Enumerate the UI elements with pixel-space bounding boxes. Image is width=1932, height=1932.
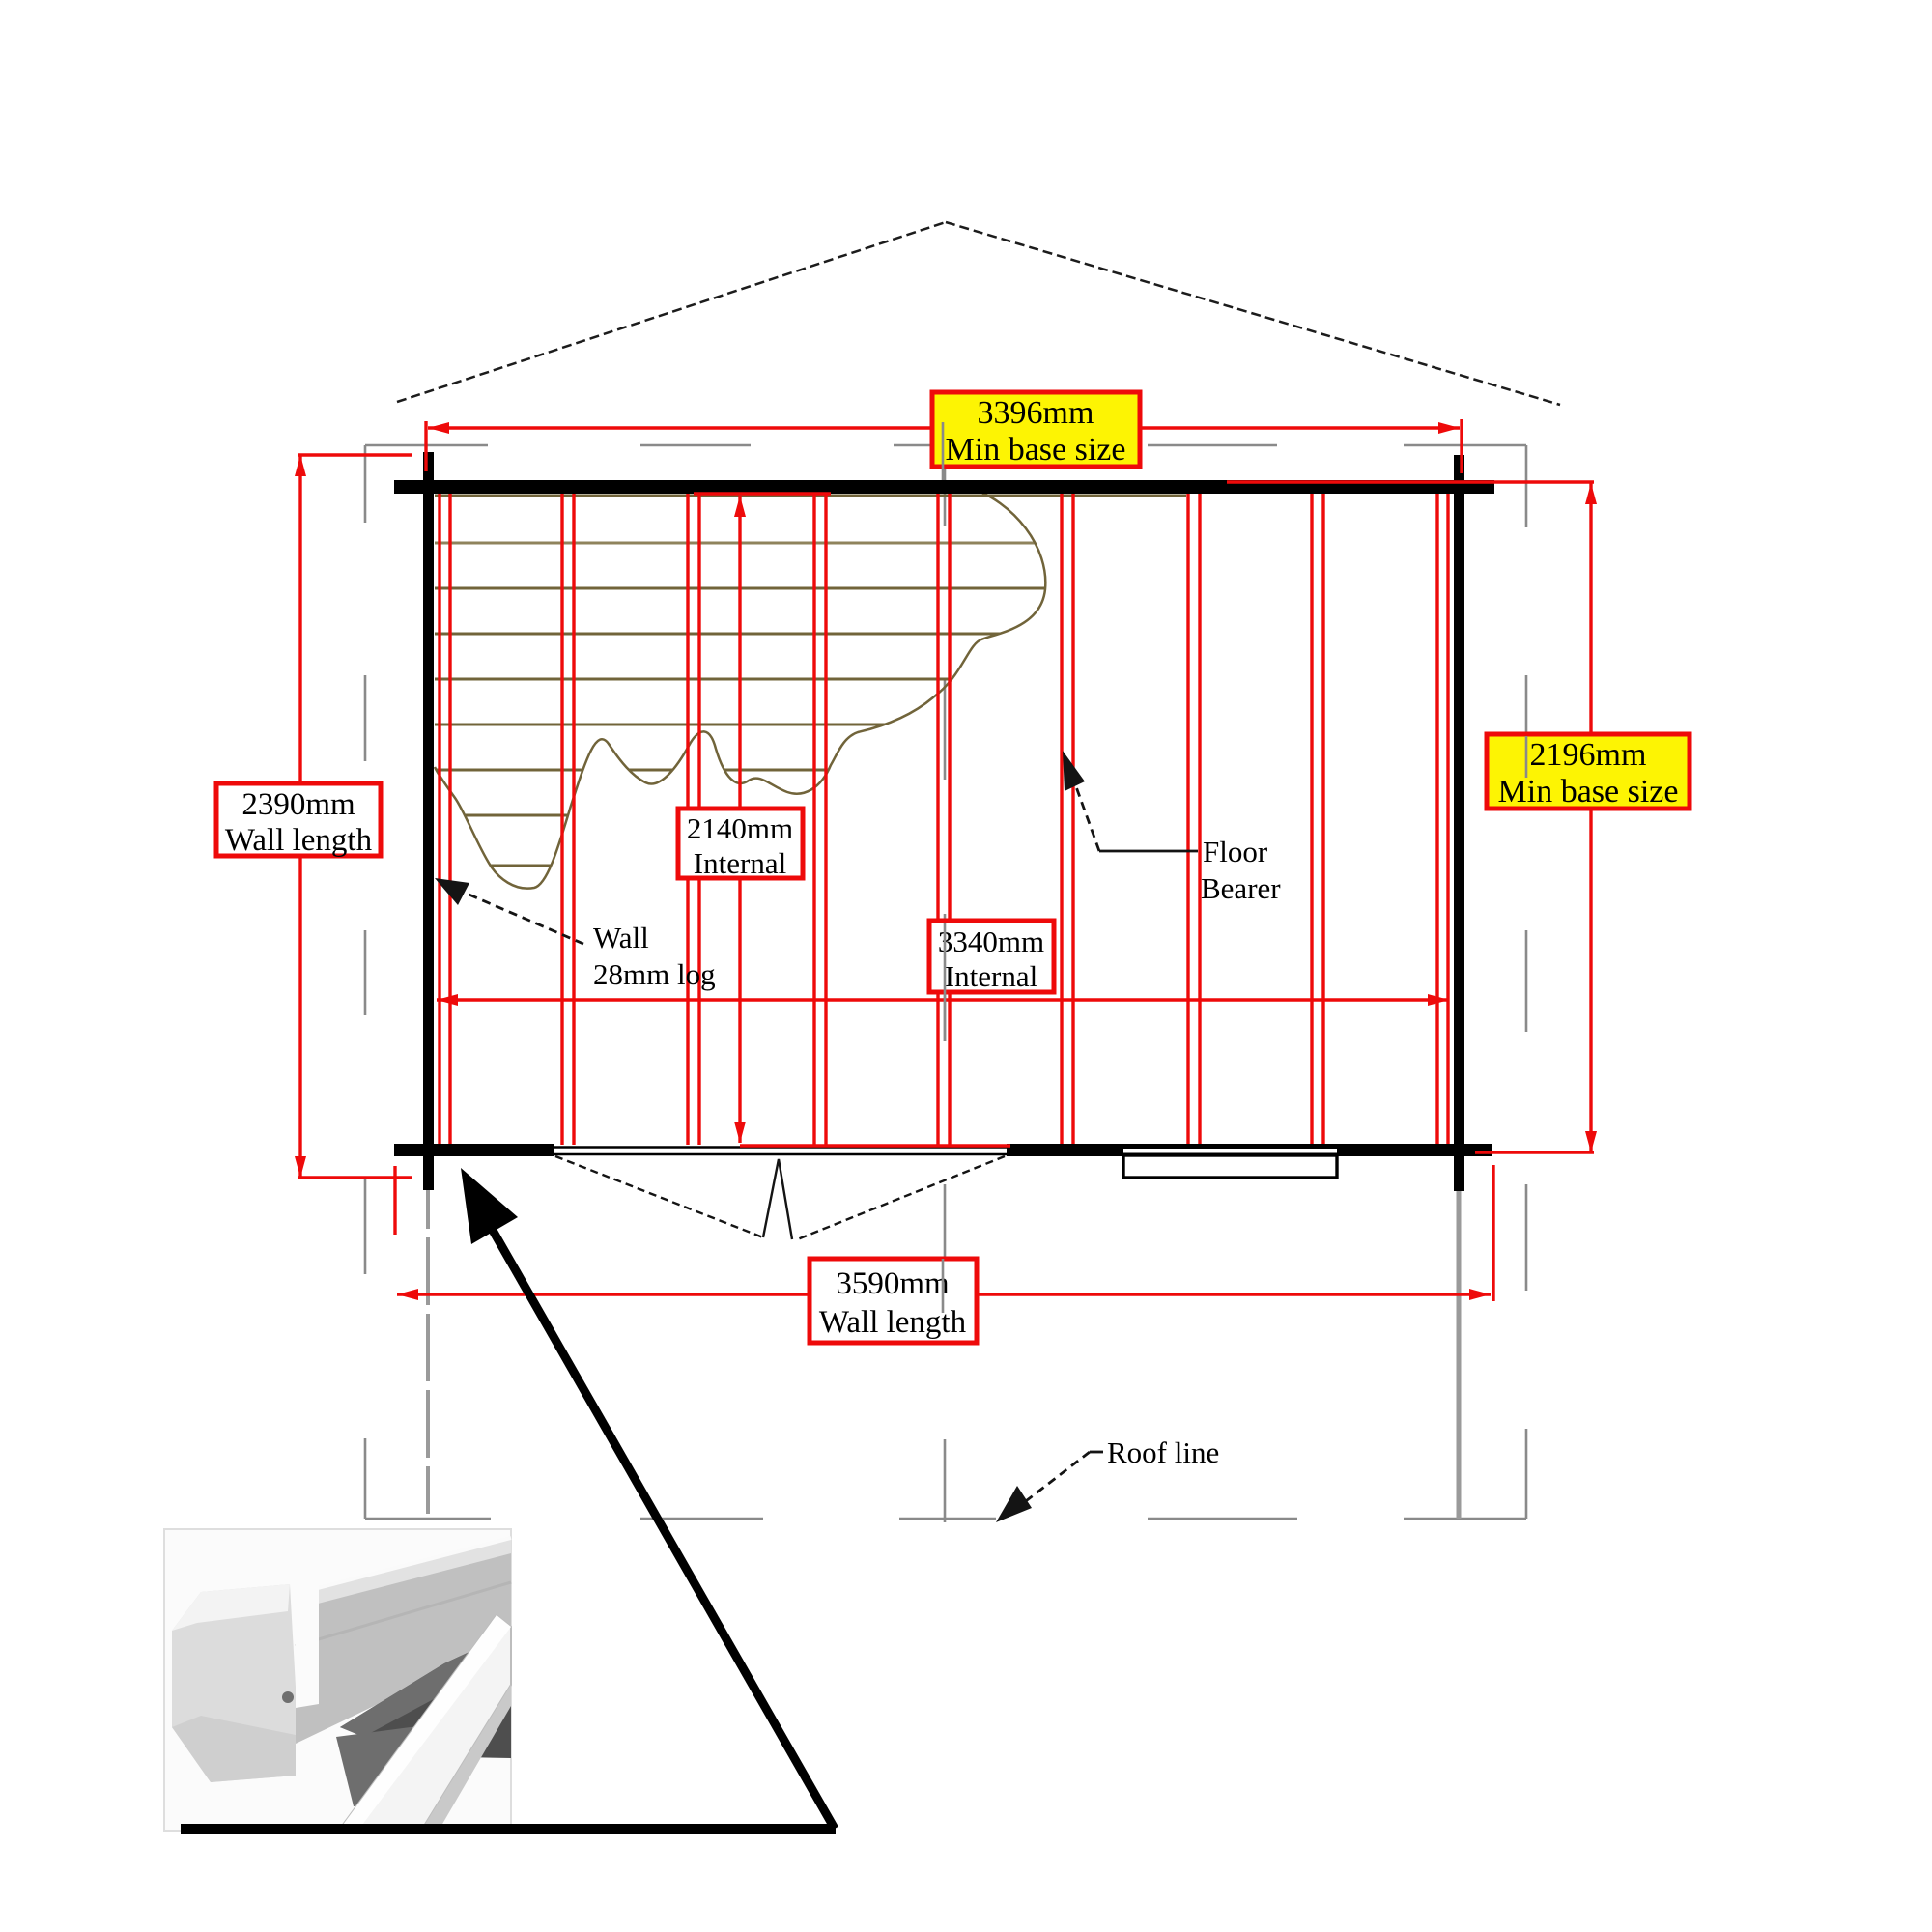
- svg-text:2390mm: 2390mm: [241, 787, 355, 822]
- svg-text:3396mm: 3396mm: [978, 395, 1094, 431]
- svg-text:Wall length: Wall length: [819, 1305, 967, 1340]
- svg-text:28mm log: 28mm log: [593, 957, 716, 991]
- svg-text:Min base size: Min base size: [946, 432, 1126, 468]
- svg-text:3340mm: 3340mm: [938, 924, 1044, 958]
- svg-text:Bearer: Bearer: [1201, 871, 1281, 905]
- svg-text:Internal: Internal: [694, 846, 786, 880]
- svg-text:Min base size: Min base size: [1498, 774, 1679, 810]
- svg-text:Floor: Floor: [1203, 835, 1268, 868]
- svg-text:Wall length: Wall length: [225, 823, 373, 858]
- svg-text:3590mm: 3590mm: [836, 1266, 950, 1301]
- svg-text:2140mm: 2140mm: [687, 811, 793, 845]
- svg-text:Internal: Internal: [945, 959, 1037, 993]
- svg-text:Wall: Wall: [593, 921, 649, 954]
- svg-text:2196mm: 2196mm: [1530, 737, 1647, 773]
- svg-text:Roof line: Roof line: [1107, 1435, 1219, 1469]
